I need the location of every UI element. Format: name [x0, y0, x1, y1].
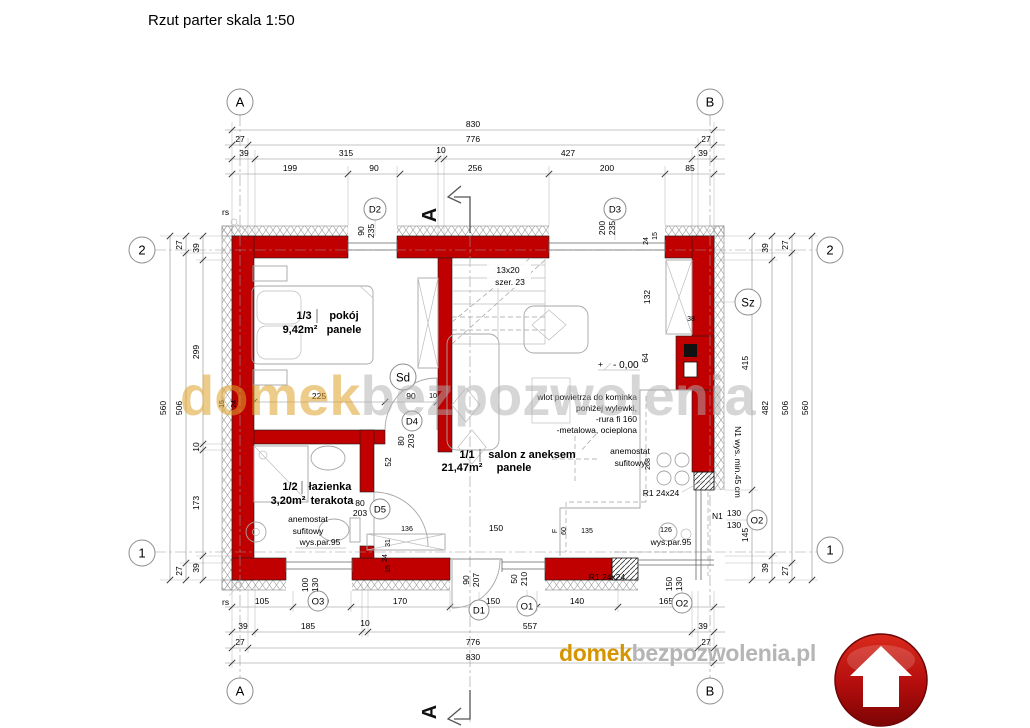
opening-dim: 90: [461, 575, 471, 585]
stove-burner: [675, 453, 689, 467]
shower: [254, 446, 308, 502]
opening-dim: 130: [310, 578, 320, 592]
dim: 27: [235, 637, 245, 647]
room-floor-pokoj: panele: [327, 324, 362, 336]
dim: 560: [158, 401, 168, 415]
opening-dim: 210: [519, 572, 529, 586]
opening-dim: 130: [674, 577, 684, 591]
room-name-pokoj: pokój: [329, 310, 358, 322]
dim: 15: [219, 400, 226, 408]
opening-dim: 200: [597, 221, 607, 235]
grid-label-a-top: A: [236, 95, 245, 110]
pillow: [257, 291, 301, 324]
grid-label-2-left: 2: [138, 243, 145, 258]
symbol-sz: Sz: [741, 298, 755, 310]
dim: 776: [466, 134, 480, 144]
dim: 39: [191, 243, 201, 253]
pillar-r1-right: [694, 472, 714, 490]
armchair-pillow: [532, 310, 566, 340]
dim: 126: [660, 527, 672, 534]
level-value: - 0,00: [613, 360, 639, 371]
grid-label-b-top: B: [706, 95, 715, 110]
radiator: [367, 534, 445, 550]
section-label-bottom: A: [419, 705, 441, 719]
dim: 39: [760, 243, 770, 253]
nightstand: [253, 370, 287, 385]
dim: 173: [191, 496, 201, 510]
opening-dim: 50: [509, 574, 519, 584]
dim: 39: [238, 621, 248, 631]
dim: 27: [780, 566, 790, 576]
dim: 10: [191, 442, 201, 452]
dim: 256: [468, 163, 482, 173]
dim: 27: [174, 240, 184, 250]
dim: 39: [191, 563, 201, 573]
dim: 200: [600, 163, 614, 173]
stove-burner: [675, 471, 689, 485]
grid-label-2-right: 2: [826, 243, 833, 258]
opening-dim: 130: [727, 520, 741, 530]
stove-burner: [657, 471, 671, 485]
room-floor-salon: panele: [497, 462, 532, 474]
opening-dim: 150: [664, 577, 674, 591]
dim: 24: [643, 237, 650, 245]
sofa-pillow: [452, 388, 480, 422]
opening-dim: 235: [366, 224, 376, 238]
air-inlet-note-1: wlot powietrza do kominka: [536, 392, 637, 402]
dim: 140: [570, 596, 584, 606]
opening-dim: 203: [406, 434, 416, 448]
dim: 39: [760, 563, 770, 573]
armchair: [524, 306, 588, 353]
anemostat-bath-2: sufitowy: [293, 526, 324, 536]
grid-label-a-bottom: A: [236, 684, 245, 699]
air-inlet-note-3: -rura fi 160: [596, 414, 637, 424]
flue-white: [684, 362, 697, 377]
parapet-bath: wys.par.95: [299, 537, 341, 547]
dim: 105: [255, 596, 269, 606]
dim: 150: [489, 523, 503, 533]
dim: 560: [800, 401, 810, 415]
symbol-rs-bottom: rs: [222, 597, 229, 607]
dim: 136: [401, 526, 413, 533]
dim: 776: [466, 637, 480, 647]
grid-label-b-bottom: B: [706, 684, 715, 699]
site-logo[interactable]: domekbezpozwolenia.pl: [559, 640, 816, 667]
dim: 315: [339, 148, 353, 158]
opening-dim: 80: [396, 436, 406, 446]
dim: 830: [466, 119, 480, 129]
opening-dim: 80: [355, 498, 365, 508]
level-plus: +: [598, 359, 603, 369]
opening-id-o3: O3: [312, 597, 325, 608]
opening-id-o2-right: O2: [751, 516, 764, 527]
dim: 145: [740, 528, 750, 542]
opening-id-d1: D1: [473, 606, 485, 617]
dim: 60: [561, 527, 568, 535]
flue-black: [684, 344, 697, 357]
room-area-pokoj: 9,42m²: [283, 324, 318, 336]
opening-dim: 130: [727, 508, 741, 518]
dim: 170: [393, 596, 407, 606]
dim: 10: [360, 618, 370, 628]
symbol-n1: N1: [712, 511, 723, 521]
dim: 150: [486, 596, 500, 606]
opening-id-d5: D5: [374, 505, 386, 516]
dim: 10: [436, 145, 446, 155]
opening-id-o2-bottom: O2: [676, 599, 689, 610]
dim: 39: [239, 148, 249, 158]
floor-plan-drawing: A B A B 2 2 1 1 830 27 776 27 39 315 10 …: [0, 0, 1030, 728]
dim: 165: [659, 596, 673, 606]
dim: 39: [698, 621, 708, 631]
dim: 27: [235, 134, 245, 144]
wardrobe: [418, 278, 438, 368]
dim: 15: [652, 232, 659, 240]
dim: 132: [642, 290, 652, 304]
floor-plan-page: Rzut parter skala 1:50: [0, 0, 1030, 728]
opening-dim: 235: [607, 221, 617, 235]
room-floor-lazienka: terakota: [311, 495, 355, 507]
lintel-r1-lower: R1 24x24: [589, 572, 626, 582]
dim: 64: [640, 353, 650, 363]
dim: 27: [780, 240, 790, 250]
opening-id-d3: D3: [609, 205, 621, 216]
parapet-kitchen: wys.par.95: [650, 537, 692, 547]
room-num-lazienka: 1/2: [282, 481, 297, 493]
dim: 506: [780, 401, 790, 415]
opening-dim: 100: [300, 578, 310, 592]
room-labels: 1/3 pokój 9,42m² panele 1/2 łazienka 3,2…: [271, 309, 576, 507]
grid-label-1-right: 1: [826, 543, 833, 558]
dim: 299: [191, 345, 201, 359]
dim: 38: [687, 316, 695, 323]
symbol-sd: Sd: [396, 373, 410, 385]
dim: 427: [561, 148, 575, 158]
opening-dim: 203: [353, 508, 367, 518]
dim: 24: [382, 554, 389, 562]
dim: 27: [174, 566, 184, 576]
opening-id-o1: O1: [521, 602, 534, 613]
stairs-note-1: 13x20: [496, 265, 519, 275]
dim: 15: [385, 565, 392, 573]
nightstand: [253, 266, 287, 281]
opening-id-d4: D4: [406, 417, 418, 428]
opening-dim: 90: [356, 226, 366, 236]
dim: 268: [645, 458, 652, 470]
logo-text-orange[interactable]: domek: [559, 640, 632, 666]
lintel-r1-upper: R1 24x24: [643, 488, 680, 498]
dim: 415: [740, 356, 750, 370]
anemostat-kitchen-2: sufitowy: [615, 458, 646, 468]
symbol-rs-top: rs: [222, 207, 229, 217]
dim: 225: [312, 391, 326, 401]
washbasin: [311, 446, 345, 470]
opening-dim: 207: [471, 573, 481, 587]
opening-id-d2: D2: [369, 205, 381, 216]
dim: 199: [283, 163, 297, 173]
dim: 557: [523, 621, 537, 631]
dims-top: 830 27 776 27 39 315 10 427 39 199 90 25…: [235, 119, 711, 173]
dim: 52: [383, 457, 393, 467]
dim: 90: [369, 163, 379, 173]
dim: 506: [174, 401, 184, 415]
room-name-salon: salon z aneksem: [488, 449, 576, 461]
room-num-pokoj: 1/3: [296, 310, 311, 322]
anemostat-bath-1: anemostat: [288, 514, 328, 524]
stove-burner: [657, 453, 671, 467]
room-area-lazienka: 3,20m²: [271, 495, 306, 507]
sofa: [447, 334, 499, 450]
air-inlet-note-4: -metalowa, ocieplona: [557, 425, 638, 435]
dim: 85: [685, 163, 695, 173]
stairs-note-2: szer. 23: [495, 277, 525, 287]
dim: 482: [760, 401, 770, 415]
dim: 39: [698, 148, 708, 158]
dim: 135: [581, 528, 593, 535]
dim: 31: [385, 539, 392, 547]
room-area-salon: 21,47m²: [442, 462, 483, 474]
air-inlet-note-2: poniżej wylewki,: [576, 403, 637, 413]
room-name-lazienka: łazienka: [309, 481, 353, 493]
logo-text-gray[interactable]: bezpozwolenia.pl: [632, 640, 816, 666]
dim: F: [552, 529, 559, 533]
anemostat-kitchen-1: anemostat: [610, 446, 650, 456]
logo-badge[interactable]: [832, 631, 930, 728]
dim: 27: [701, 134, 711, 144]
room-num-salon: 1/1: [459, 449, 474, 461]
symbol-n1-note: N1 wys. min.45 cm: [733, 426, 743, 498]
dim: 24: [231, 400, 238, 408]
grid-label-1-left: 1: [138, 546, 145, 561]
dim: 10: [429, 393, 437, 400]
dim: 90: [406, 391, 416, 401]
dim: 830: [466, 652, 480, 662]
dim: 185: [301, 621, 315, 631]
section-label-top: A: [419, 208, 441, 222]
